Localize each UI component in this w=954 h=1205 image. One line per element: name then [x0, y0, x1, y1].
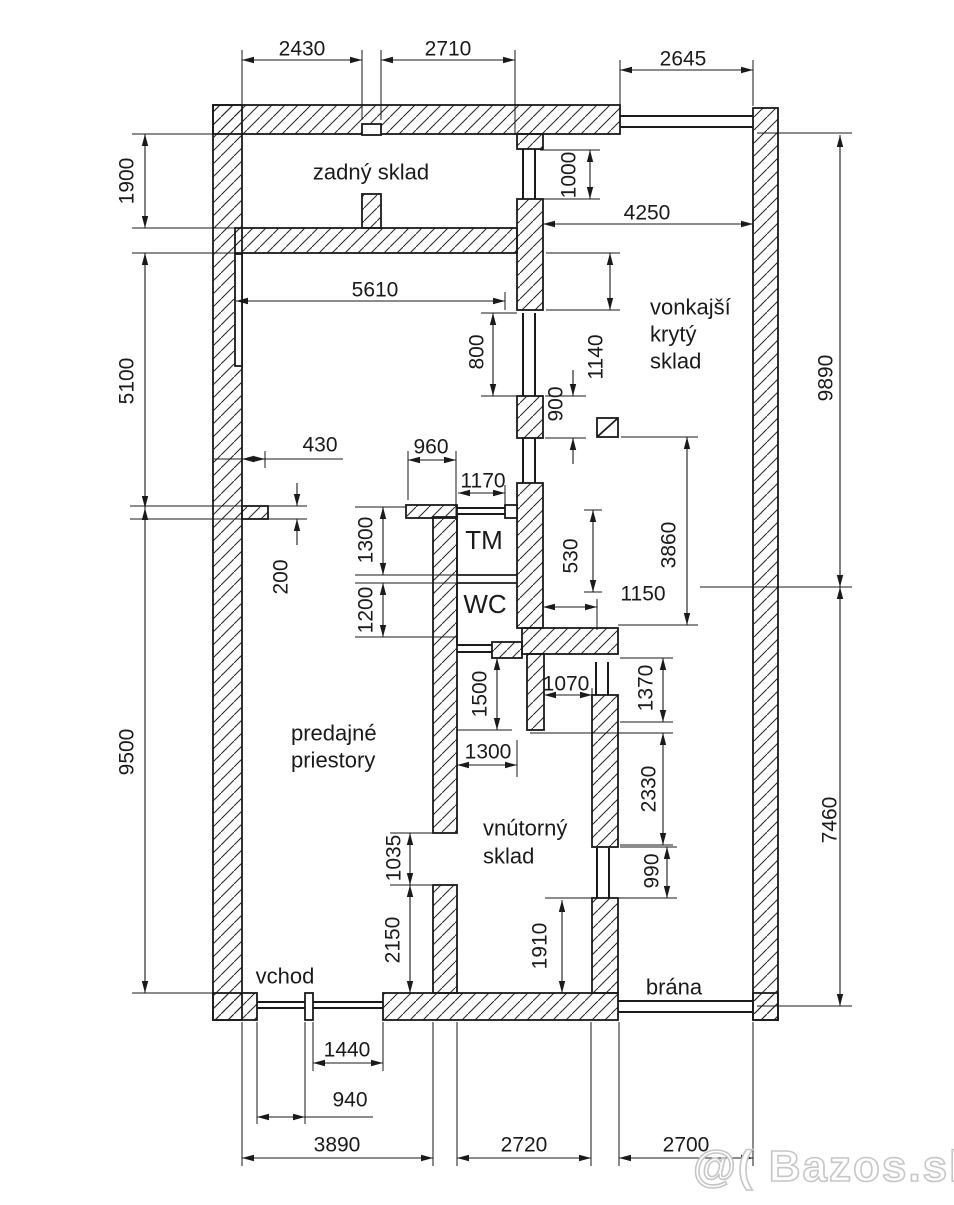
- wall-right: [753, 108, 778, 1020]
- svg-text:1910: 1910: [529, 923, 552, 970]
- svg-text:1070: 1070: [543, 673, 590, 696]
- wall-right-mid-upper: [592, 695, 618, 847]
- svg-text:1370: 1370: [635, 665, 658, 712]
- dim-5610: 5610: [236, 279, 505, 311]
- gate-opening: [618, 1001, 753, 1012]
- label-sales-line2: priestory: [291, 748, 375, 773]
- mid-wall-block: [517, 396, 543, 438]
- dim-1910: 1910: [529, 900, 563, 993]
- dim-2720: 2720: [457, 1022, 591, 1166]
- label-tm: TM: [465, 525, 503, 555]
- dim-2645: 2645: [620, 48, 753, 113]
- mid-wall-pillar-upper: [517, 199, 543, 310]
- label-outdoor-line1: vonkajší: [650, 295, 731, 320]
- svg-text:1500: 1500: [469, 671, 492, 718]
- mid-wall-tmwc: [517, 483, 543, 628]
- svg-text:9890: 9890: [815, 355, 838, 402]
- svg-text:4250: 4250: [624, 202, 671, 225]
- svg-text:940: 940: [332, 1089, 367, 1112]
- door-wc-bottom: [457, 645, 492, 652]
- window-mid-800: [523, 313, 535, 396]
- window-front: [313, 1002, 383, 1008]
- floorplan-page: 2430 2710 2645 1900 1000: [0, 0, 954, 1200]
- window-990: [597, 848, 609, 898]
- wall-band: [522, 628, 618, 654]
- wall-interior-horizontal: [235, 228, 517, 253]
- label-entrance: vchod: [256, 964, 315, 989]
- dim-1150: 1150: [543, 583, 666, 631]
- square-pillar: [597, 418, 618, 437]
- svg-text:1440: 1440: [324, 1039, 371, 1062]
- stub-back-storage: [362, 194, 381, 228]
- dim-800: 800: [466, 313, 518, 396]
- svg-text:1300: 1300: [465, 741, 512, 764]
- svg-text:3860: 3860: [658, 522, 681, 569]
- window-tm-top: [457, 508, 505, 514]
- dim-1300-w: 1300: [457, 740, 517, 777]
- wall-bottom: [383, 993, 618, 1020]
- wc-door-post: [492, 642, 522, 658]
- svg-text:2330: 2330: [638, 766, 661, 813]
- watermark: @( Bazos.sk: [693, 1142, 954, 1191]
- dim-1170: 1170: [458, 470, 506, 506]
- svg-text:7460: 7460: [819, 797, 842, 844]
- dim-2150: 2150: [382, 885, 411, 993]
- window-top-right: [620, 116, 753, 127]
- svg-text:800: 800: [466, 334, 489, 369]
- wall-top-notch: [362, 124, 381, 135]
- tm-top-post: [505, 505, 517, 518]
- svg-text:1200: 1200: [355, 587, 378, 634]
- dim-900: 900: [545, 370, 587, 464]
- svg-text:530: 530: [560, 538, 583, 573]
- dim-990: 990: [545, 847, 677, 898]
- label-outdoor-line2: krytý: [650, 322, 696, 347]
- svg-text:3890: 3890: [314, 1134, 361, 1157]
- dim-940: 940: [257, 1022, 373, 1124]
- wall-left-stub: [242, 506, 268, 519]
- dim-1070: 1070: [543, 673, 592, 706]
- svg-text:990: 990: [641, 853, 664, 888]
- dim-1440: 1440: [313, 1022, 383, 1071]
- wall-top: [213, 105, 620, 134]
- walls: [213, 105, 778, 1020]
- dim-1500: 1500: [457, 658, 512, 730]
- label-back-storage: zadný sklad: [313, 160, 429, 185]
- svg-text:1140: 1140: [585, 334, 608, 379]
- svg-text:5100: 5100: [116, 358, 139, 405]
- svg-text:2710: 2710: [425, 38, 472, 61]
- svg-text:900: 900: [545, 386, 568, 421]
- svg-text:1300: 1300: [355, 517, 378, 564]
- svg-text:1170: 1170: [460, 470, 505, 493]
- floorplan-drawing: 2430 2710 2645 1900 1000: [0, 0, 954, 1200]
- svg-text:1900: 1900: [116, 158, 139, 205]
- svg-text:2430: 2430: [279, 38, 326, 61]
- wall-right-mid-lower: [592, 898, 618, 993]
- wall-sales-strip: [433, 517, 457, 833]
- svg-text:1035: 1035: [383, 835, 406, 882]
- svg-text:2720: 2720: [501, 1134, 548, 1157]
- window-mid-1000: [523, 149, 535, 199]
- svg-text:5610: 5610: [352, 279, 399, 302]
- entrance-door-post: [305, 993, 313, 1020]
- stub-tm-left: [406, 505, 457, 518]
- dim-1140: 1140: [546, 253, 620, 380]
- svg-text:9500: 9500: [116, 729, 139, 776]
- door-entrance: [257, 1002, 305, 1008]
- label-sales-line1: predajné: [291, 721, 377, 746]
- svg-text:1000: 1000: [558, 152, 581, 199]
- dim-1370: 1370: [620, 658, 673, 722]
- dim-9500: 9500: [116, 508, 214, 993]
- svg-text:1150: 1150: [620, 583, 665, 606]
- label-gate: brána: [646, 975, 703, 1000]
- label-wc: WC: [463, 589, 506, 619]
- label-outdoor-line3: sklad: [650, 349, 701, 374]
- wall-left-recess: [235, 254, 242, 366]
- label-inner-line1: vnútorný: [483, 816, 567, 841]
- window-1070-side: [596, 662, 608, 695]
- dim-1035: 1035: [383, 833, 434, 885]
- dim-4250: 4250: [543, 202, 753, 235]
- svg-text:960: 960: [413, 436, 448, 459]
- svg-text:2645: 2645: [660, 48, 707, 71]
- svg-text:200: 200: [270, 559, 293, 594]
- dim-1000: 1000: [540, 150, 600, 199]
- svg-text:430: 430: [302, 434, 337, 457]
- dim-530: 530: [560, 510, 603, 592]
- mid-wall-tstub: [517, 134, 543, 149]
- wall-jamb-1070: [527, 654, 544, 730]
- wall-sales-strip-lower: [433, 885, 457, 993]
- svg-text:2150: 2150: [382, 917, 405, 964]
- window-mid-lower: [523, 438, 535, 483]
- label-inner-line2: sklad: [483, 844, 534, 869]
- wall-bottom-left-corner: [213, 993, 257, 1020]
